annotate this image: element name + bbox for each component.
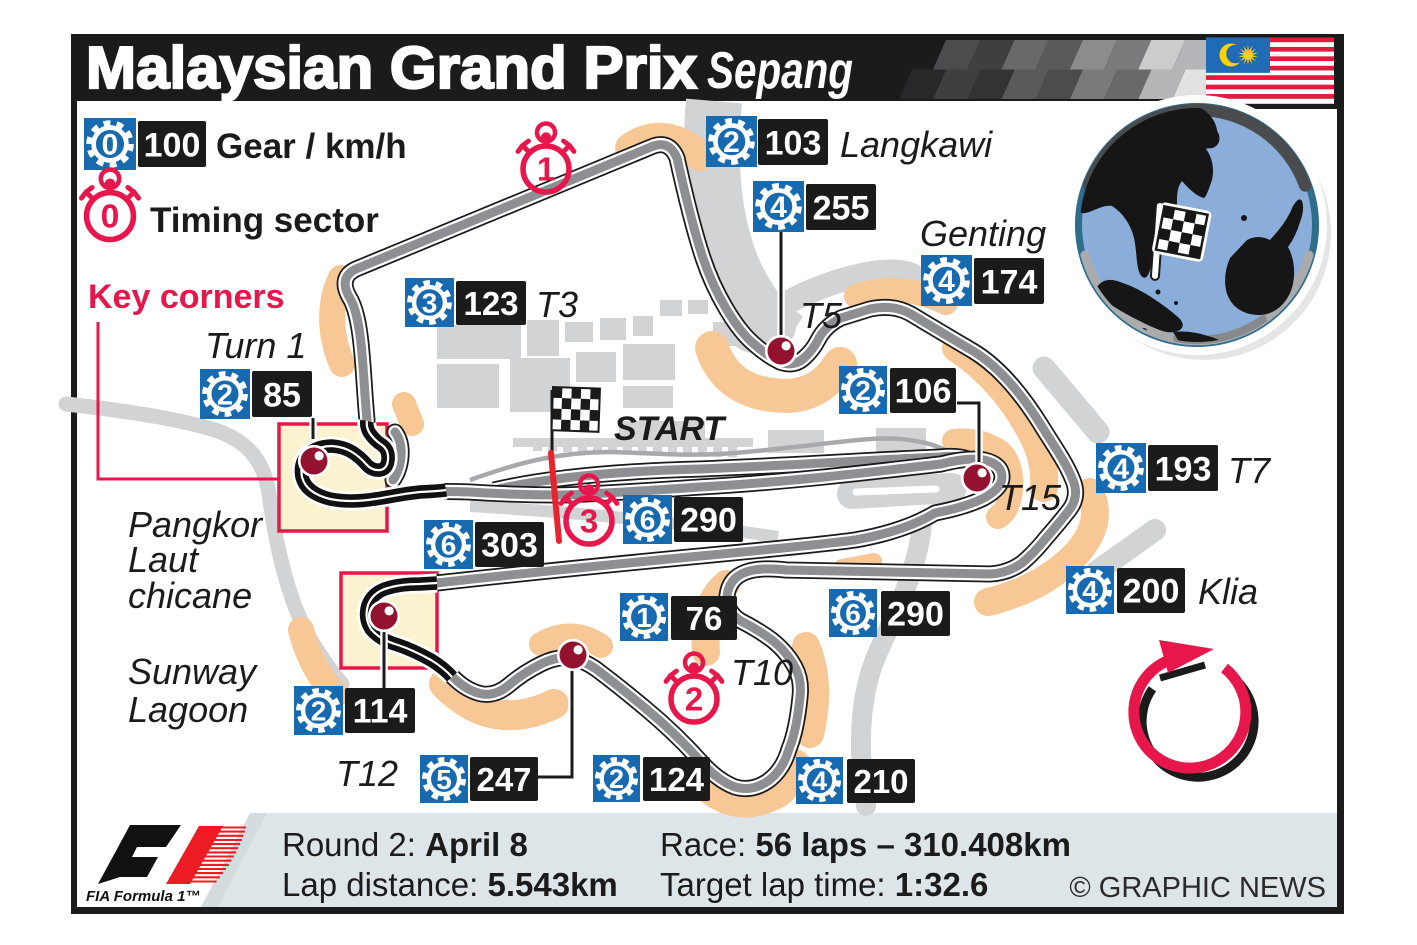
svg-text:Gear / km/h: Gear / km/h [216, 127, 407, 166]
svg-text:4: 4 [1113, 453, 1129, 485]
svg-text:2: 2 [609, 764, 624, 794]
svg-text:Laut: Laut [128, 539, 200, 580]
svg-text:Klia: Klia [1198, 571, 1258, 612]
svg-text:123: 123 [463, 285, 518, 322]
svg-text:6: 6 [441, 530, 457, 561]
svg-text:6: 6 [640, 505, 656, 536]
svg-text:6: 6 [845, 598, 861, 629]
svg-text:2: 2 [723, 126, 740, 159]
svg-text:247: 247 [476, 761, 531, 798]
svg-text:0: 0 [101, 199, 120, 236]
svg-text:3: 3 [422, 288, 438, 319]
svg-text:Race: 56 laps – 310.408km: Race: 56 laps – 310.408km [660, 826, 1071, 863]
svg-text:2: 2 [685, 681, 703, 718]
svg-text:© GRAPHIC NEWS: © GRAPHIC NEWS [1069, 872, 1326, 904]
svg-text:1: 1 [636, 602, 652, 633]
svg-text:303: 303 [481, 527, 538, 565]
svg-text:chicane: chicane [128, 575, 252, 616]
svg-text:T3: T3 [536, 284, 578, 325]
svg-text:2: 2 [217, 379, 233, 411]
svg-text:193: 193 [1155, 450, 1212, 488]
svg-text:FIA Formula 1™: FIA Formula 1™ [86, 888, 200, 905]
svg-text:Target lap time: 1:32.6: Target lap time: 1:32.6 [660, 866, 988, 903]
svg-text:85: 85 [263, 376, 301, 414]
svg-text:290: 290 [680, 502, 737, 540]
svg-text:4: 4 [812, 766, 827, 796]
svg-text:Lagoon: Lagoon [128, 689, 248, 730]
svg-text:210: 210 [853, 763, 908, 800]
svg-text:100: 100 [144, 126, 201, 164]
svg-text:200: 200 [1123, 573, 1180, 611]
svg-text:4: 4 [938, 265, 955, 298]
svg-text:103: 103 [765, 124, 822, 162]
svg-text:Malaysian Grand Prix: Malaysian Grand Prix [86, 35, 697, 101]
svg-text:76: 76 [686, 600, 723, 637]
svg-text:Turn 1: Turn 1 [205, 325, 306, 366]
svg-text:Lap distance: 5.543km: Lap distance: 5.543km [282, 866, 618, 903]
svg-text:Sunway: Sunway [128, 651, 258, 692]
svg-text:Round 2: April 8: Round 2: April 8 [282, 826, 528, 863]
svg-text:3: 3 [580, 503, 598, 540]
svg-text:START: START [614, 410, 727, 448]
svg-text:1: 1 [537, 151, 555, 188]
svg-text:T5: T5 [800, 295, 843, 336]
svg-text:174: 174 [981, 263, 1038, 301]
svg-text:Key corners: Key corners [88, 278, 285, 316]
svg-text:5: 5 [436, 764, 452, 795]
svg-text:T7: T7 [1228, 450, 1272, 491]
svg-text:106: 106 [895, 373, 952, 411]
svg-text:T10: T10 [731, 652, 793, 693]
svg-text:124: 124 [649, 761, 705, 798]
svg-text:Genting: Genting [920, 213, 1046, 254]
svg-text:290: 290 [887, 596, 944, 634]
svg-text:T15: T15 [999, 477, 1062, 518]
svg-text:0: 0 [102, 129, 119, 162]
svg-text:114: 114 [353, 693, 408, 731]
svg-text:255: 255 [813, 189, 870, 227]
svg-text:Timing sector: Timing sector [150, 201, 379, 240]
svg-text:T12: T12 [336, 753, 398, 794]
svg-text:4: 4 [770, 191, 787, 224]
svg-text:2: 2 [311, 696, 327, 727]
svg-text:Sepang: Sepang [707, 42, 853, 100]
svg-text:4: 4 [1082, 575, 1098, 606]
svg-text:2: 2 [855, 375, 871, 406]
svg-text:Langkawi: Langkawi [840, 124, 993, 165]
